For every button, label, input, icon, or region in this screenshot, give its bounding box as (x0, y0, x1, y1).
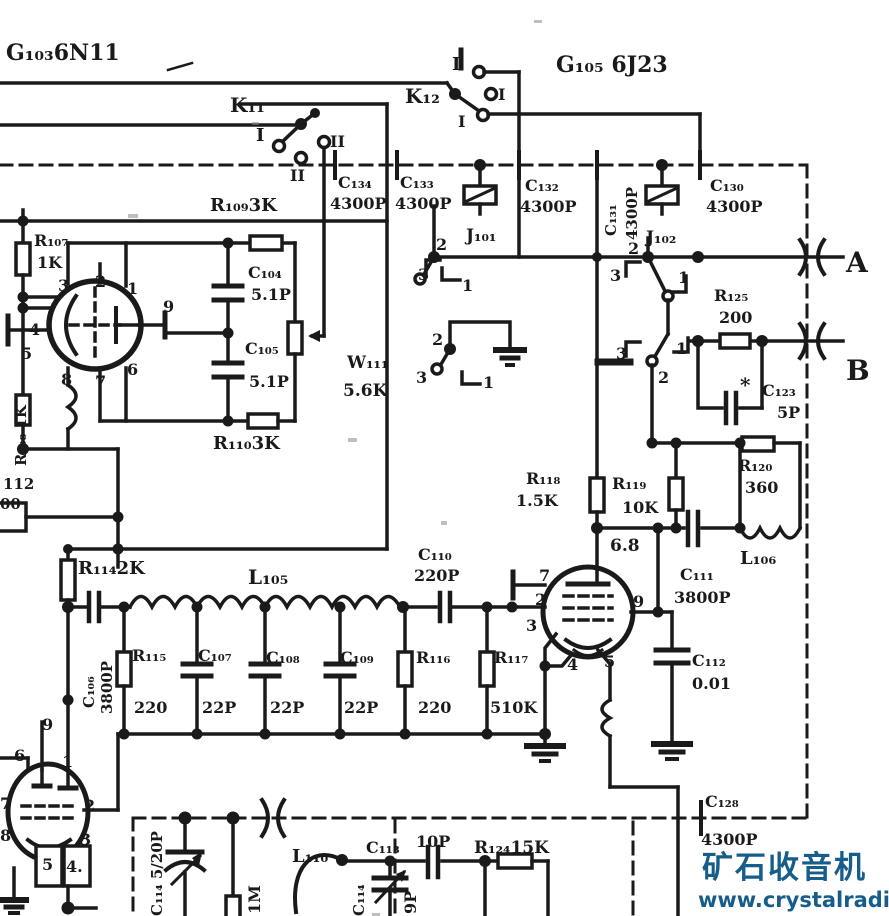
label-k11-pos-ii2: II (330, 132, 345, 151)
label-k12-pos-i-bot: I (458, 112, 465, 131)
label-r125-value: 200 (719, 308, 752, 327)
label-k12: K₁₂ (405, 84, 440, 108)
label-tube-g103: G₁₀₃6N11 (6, 40, 120, 66)
label-g104-pin6: 6 (14, 746, 25, 765)
label-k11-pos-i: I (256, 125, 264, 146)
label-g103-pin2: 2 (95, 272, 106, 291)
label-c130: C₁₃₀ (710, 176, 744, 195)
label-c132-value: 4300P (520, 197, 577, 216)
label-g103-pin8: 8 (61, 370, 72, 389)
label-g104-pin4: 4. (66, 857, 83, 876)
label-k12-pos-i-top: I (452, 54, 460, 75)
label-g104-pin2: 2 (84, 796, 95, 815)
label-k12-pos-i-mid: I (498, 85, 505, 104)
label-c106-value: 3800P (98, 661, 116, 714)
label-r114: R₁₁₄2K (78, 558, 146, 579)
label-c132: C₁₃₂ (525, 176, 559, 195)
label-g103-pin4: 4 (29, 320, 40, 339)
label-c105-value: 5.1P (249, 372, 289, 391)
label-l110: L₁₁₀ (292, 846, 328, 867)
label-r119-value: 10K (622, 498, 659, 517)
label-w111-value: 5.6K (343, 381, 389, 401)
label-r107: R₁₀₇ (34, 231, 68, 250)
label-c104: C₁₀₄ (248, 263, 282, 282)
label-bias: 6.8 (610, 536, 640, 556)
label-r120: R₁₂₀ (738, 456, 772, 475)
label-c105: C₁₀₅ (245, 339, 279, 358)
label-r108: R₁₀₈ 1K (12, 404, 30, 466)
label-j101-c1: 1 (462, 276, 473, 295)
label-r116-value: 220 (418, 698, 451, 717)
label-g103-pin5: 5 (21, 344, 32, 363)
label-j102-c1: 1 (678, 268, 689, 287)
label-c114a: C₁₁₄ 5/20P (148, 831, 166, 916)
label-g105-pin7: 7 (539, 566, 550, 585)
label-g103-pin3: 3 (58, 276, 69, 295)
label-c112: C₁₁₂ (692, 651, 726, 670)
label-c123-mark: * (740, 373, 751, 397)
label-g105-pin5: 5 (604, 652, 615, 671)
label-j101b-c3: 3 (416, 368, 427, 387)
label-r125: R₁₂₅ (714, 286, 748, 305)
label-g104-pin3: 3 (80, 830, 91, 849)
label-c113-value: 10P (416, 832, 450, 851)
label-r-1m: 1M (245, 885, 264, 914)
label-g103-pin9: 9 (163, 297, 174, 316)
label-r119: R₁₁₉ (612, 474, 646, 493)
label-r109: R₁₀₉3K (210, 195, 278, 216)
labels: G₁₀₃6N11 G₁₀₅ 6J23 K₁₁ I II II K₁₂ I I I… (0, 40, 889, 916)
label-l106: L₁₀₆ (740, 548, 776, 569)
label-c131: C₁₃₁ (602, 204, 620, 236)
watermark-site-url: www.crystalradio.cn (698, 888, 889, 912)
label-c109: C₁₀₉ (340, 648, 374, 667)
label-g105-pin2: 2 (535, 590, 546, 609)
label-r120-value: 360 (745, 478, 778, 497)
label-r117: R₁₁₇ (494, 648, 528, 667)
label-r115: R₁₁₅ (132, 646, 166, 665)
label-c109-value: 22P (344, 698, 378, 717)
label-g104-pin9: 9 (42, 715, 53, 734)
label-c134-value: 4300P (330, 194, 387, 213)
label-connector-a: A (845, 246, 869, 279)
label-c133-value: 4300P (395, 194, 452, 213)
label-g105-pin3: 3 (526, 616, 537, 635)
label-r117-value: 510K (490, 698, 538, 717)
label-j102-c3: 3 (610, 266, 621, 285)
label-g105-pin4: 4 (567, 655, 578, 674)
label-k11: K₁₁ (230, 93, 265, 117)
label-c107: C₁₀₇ (198, 646, 232, 665)
label-j101b-c1: 1 (483, 373, 494, 392)
label-c104-value: 5.1P (251, 285, 291, 304)
label-c112-value: 0.01 (692, 674, 731, 693)
schematic-page: G₁₀₃6N11 G₁₀₅ 6J23 K₁₁ I II II K₁₂ I I I… (0, 0, 889, 916)
label-g105-pin9: 9 (633, 592, 644, 611)
label-c106: C₁₀₆ (80, 676, 98, 708)
label-r110: R₁₁₀3K (213, 433, 281, 454)
label-g104-pin5: 5 (42, 855, 53, 874)
label-r118: R₁₁₈ (526, 469, 560, 488)
label-c128: C₁₂₈ (705, 792, 739, 811)
label-j102b-c2: 2 (658, 368, 669, 387)
label-g104-pin7: 7 (0, 794, 11, 813)
label-g103-pin1: 1 (127, 279, 138, 298)
label-c113: C₁₁₃ (366, 838, 400, 857)
label-g104-pin8: 8 (0, 826, 11, 845)
label-j102-c2: 2 (628, 239, 639, 258)
label-w112-partial-a: 112 (3, 475, 34, 493)
label-c134: C₁₃₄ (338, 173, 372, 192)
label-k11-pos-ii: II (290, 166, 305, 185)
label-w111: W₁₁₁ (346, 353, 388, 373)
label-j101: J₁₀₁ (464, 226, 496, 246)
label-g103-pin6: 6 (127, 360, 138, 379)
label-j101-c2: 2 (436, 235, 447, 254)
label-r115-value: 220 (134, 698, 167, 717)
label-r124: R₁₂₄15K (474, 838, 550, 858)
label-c108-value: 22P (270, 698, 304, 717)
label-c114b: C₁₁₄ (350, 884, 368, 916)
label-tube-g105: G₁₀₅ 6J23 (556, 52, 668, 78)
label-c111-value: 3800P (674, 588, 731, 607)
label-j102b-c3: 3 (616, 344, 627, 363)
label-j102b-c1: 1 (676, 339, 687, 358)
label-j102: J₁₀₂ (644, 228, 676, 248)
label-c107-value: 22P (202, 698, 236, 717)
label-connector-b: B (846, 354, 870, 387)
label-r118-value: 1.5K (516, 491, 559, 510)
label-c108: C₁₀₈ (266, 648, 300, 667)
label-c131-value: 4300P (623, 187, 641, 240)
label-c133: C₁₃₃ (400, 173, 434, 192)
label-c123-value: 5P (777, 403, 800, 422)
schematic-canvas: G₁₀₃6N11 G₁₀₅ 6J23 K₁₁ I II II K₁₂ I I I… (0, 0, 889, 916)
label-w112-partial-b: 00 (0, 495, 21, 513)
label-c128-value: 4300P (701, 830, 758, 849)
label-r107-value: 1K (37, 253, 63, 272)
label-g103-pin7: 7 (95, 372, 106, 391)
label-c110: C₁₁₀ (418, 545, 452, 564)
label-c111: C₁₁₁ (680, 565, 714, 584)
watermark-site-name: 矿石收音机 (702, 850, 867, 886)
label-c114b-value: 9P (401, 891, 420, 914)
label-r116: R₁₁₆ (416, 648, 450, 667)
label-c110-value: 220P (414, 566, 459, 585)
label-g104-pin1: 1 (62, 752, 73, 771)
label-j101-c3: 3 (418, 265, 429, 284)
label-c123: C₁₂₃ (762, 381, 796, 400)
label-l105: L₁₀₅ (248, 565, 288, 589)
label-c130-value: 4300P (706, 197, 763, 216)
label-j101b-c2: 2 (432, 330, 443, 349)
